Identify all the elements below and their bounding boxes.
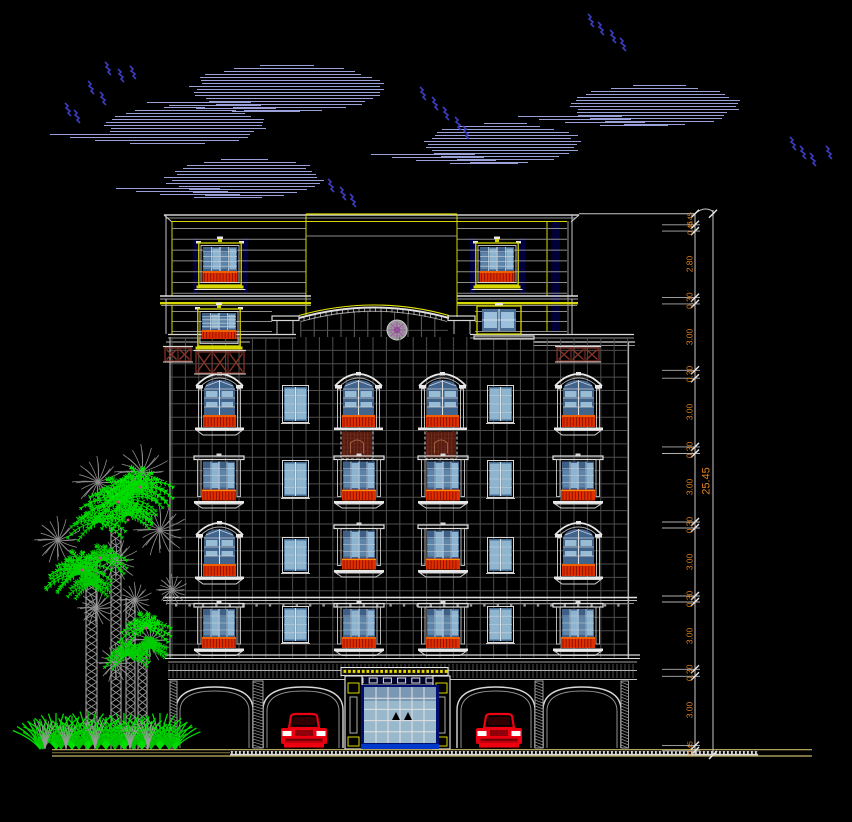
svg-text:0.30: 0.30 <box>685 292 695 309</box>
svg-text:25.45: 25.45 <box>701 467 713 495</box>
svg-text:0.30: 0.30 <box>685 365 695 382</box>
svg-text:3.00: 3.00 <box>685 553 695 570</box>
svg-text:0.30: 0.30 <box>685 441 695 458</box>
svg-text:3.00: 3.00 <box>685 478 695 495</box>
svg-text:0.45: 0.45 <box>688 741 695 755</box>
svg-text:0.30: 0.30 <box>685 664 695 681</box>
svg-text:2.80: 2.80 <box>685 255 695 272</box>
svg-text:3.00: 3.00 <box>685 403 695 420</box>
svg-text:3.00: 3.00 <box>685 701 695 718</box>
svg-text:3.00: 3.00 <box>685 627 695 644</box>
svg-text:0.30: 0.30 <box>685 516 695 533</box>
svg-text:3.00: 3.00 <box>685 328 695 345</box>
svg-text:0.45: 0.45 <box>688 221 695 235</box>
svg-text:0.30: 0.30 <box>685 590 695 607</box>
